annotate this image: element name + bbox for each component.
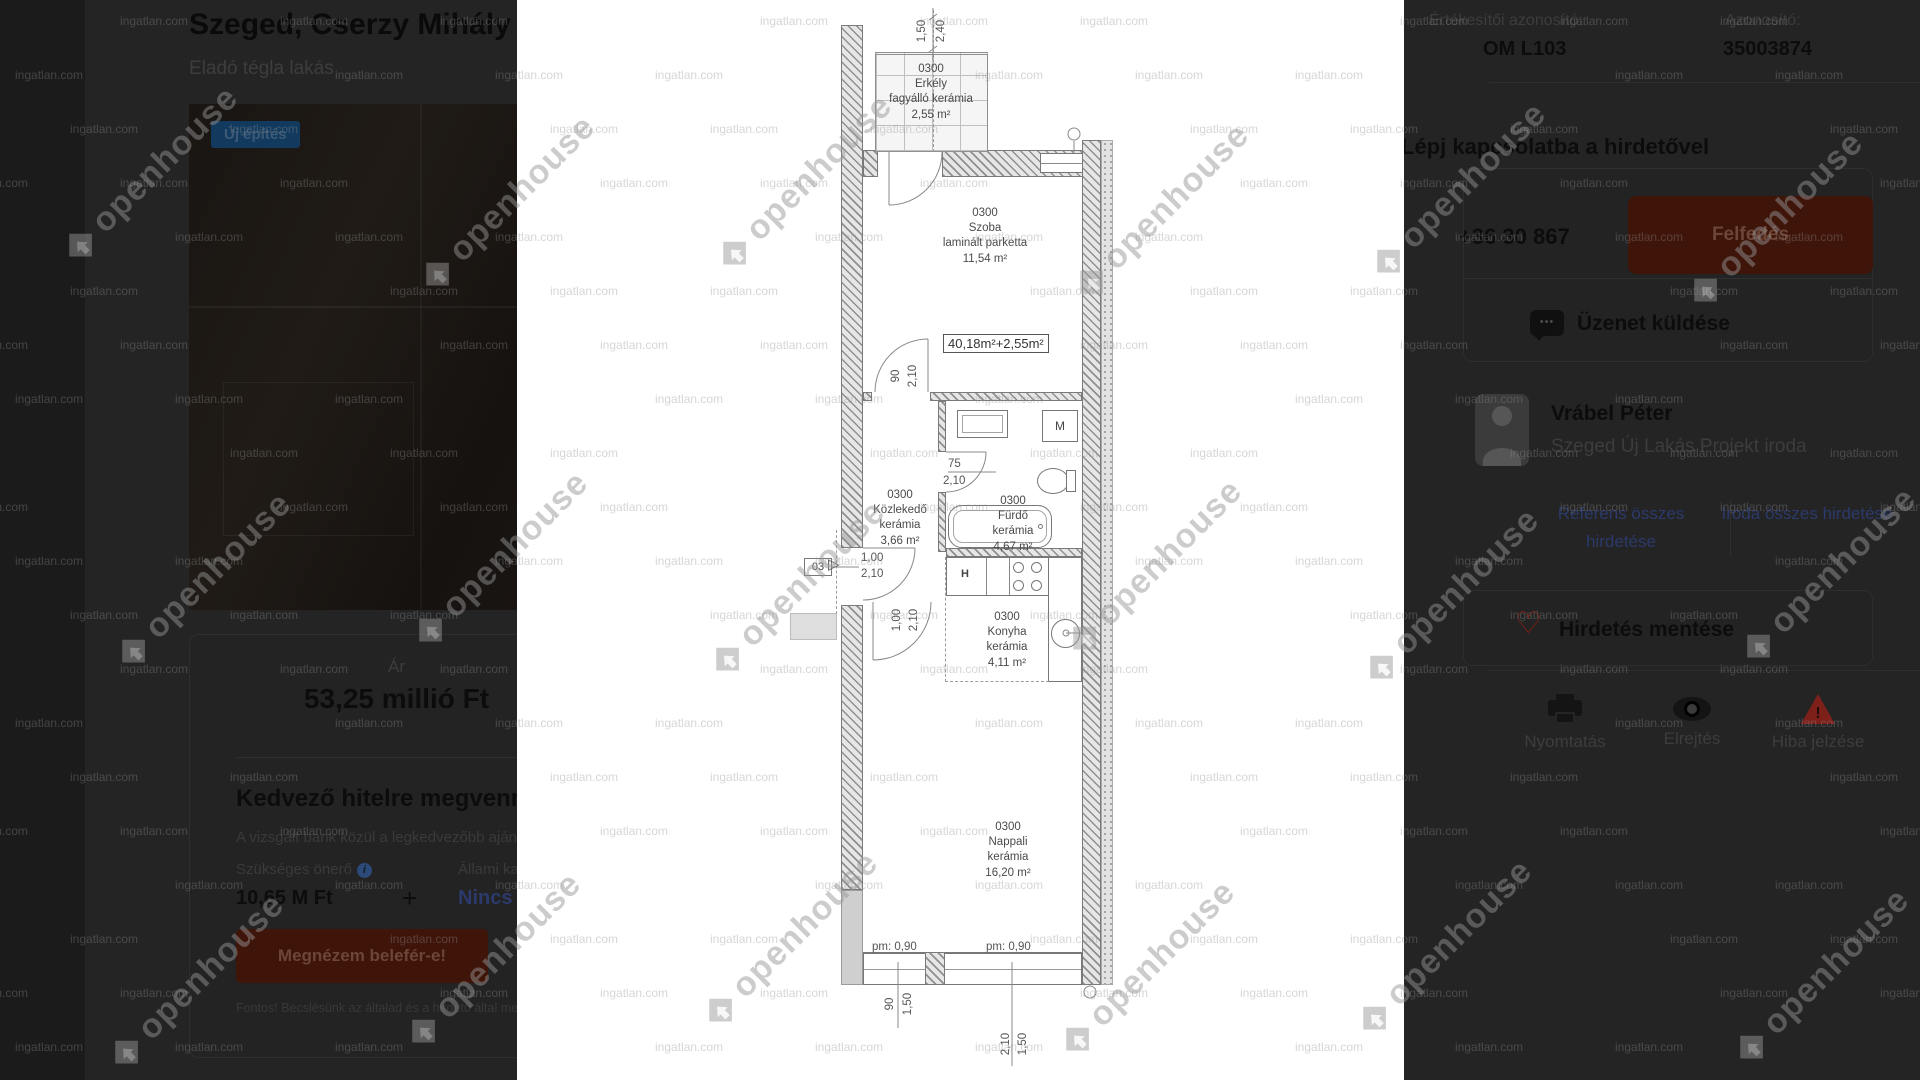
- dim-bottom-right-2: 1,50: [1017, 1024, 1029, 1064]
- dim-bottom-left-2: 1,50: [902, 984, 914, 1024]
- watermark-ingatlan: ingatlan.com: [0, 824, 28, 838]
- downpayment-value: 10,65 M Ft: [236, 887, 333, 910]
- advertiser-id-label: Értékesítői azonosító:: [1429, 12, 1583, 30]
- fridge-label: H: [955, 566, 975, 582]
- room-name: Fürdő: [943, 509, 1083, 524]
- downpayment-label: Szükséges önerői: [236, 861, 372, 878]
- room-code: 0300: [938, 820, 1078, 835]
- room-area: 4,67 m²: [943, 540, 1083, 555]
- dim-hall-door-2: 2,10: [908, 600, 920, 640]
- report-label: Hiba jelzése: [1758, 732, 1878, 752]
- room-label-konyha: 0300 Konyha kerámia 4,11 m²: [937, 610, 1077, 671]
- new-build-badge: Új építés: [211, 121, 300, 148]
- print-button[interactable]: Nyomtatás: [1505, 694, 1625, 752]
- room-name: Konyha: [937, 625, 1077, 640]
- dim-bottom-left-1: 90: [884, 984, 896, 1024]
- room-label-szoba: 0300 Szoba laminált parketta 11,54 m²: [905, 206, 1065, 267]
- dim-bath-door-2: 2,10: [943, 475, 965, 487]
- dim-hall-door-1: 1,00: [891, 600, 903, 640]
- dim-szoba-door-1: 90: [890, 356, 902, 396]
- dim-top-1: 1,50: [916, 11, 928, 51]
- dim-bottom-right-1: 2,10: [1000, 1024, 1012, 1064]
- watermark-ingatlan: ingatlan.com: [15, 68, 83, 82]
- divider: [1489, 82, 1920, 83]
- advertiser-id-value: OM L103: [1483, 38, 1566, 61]
- screenshot-root: Szeged, Cserzy Mihály utca Eladó tégla l…: [0, 0, 1920, 1080]
- room-area: 16,20 m²: [938, 866, 1078, 881]
- room-code: 0300: [905, 206, 1065, 221]
- room-name: Nappali: [938, 835, 1078, 850]
- watermark-ingatlan: ingatlan.com: [15, 554, 83, 568]
- phone-number: +36 30 867: [1459, 224, 1570, 250]
- watermark-ingatlan: ingatlan.com: [0, 176, 28, 190]
- dim-window-left: pm: 0,90: [872, 941, 917, 953]
- hide-label: Elrejtés: [1632, 729, 1752, 749]
- room-floor: laminált parketta: [905, 236, 1065, 251]
- photo-detail: [223, 382, 414, 536]
- plus-sign: +: [402, 883, 417, 914]
- agent-office: Szeged Új Lakás Projekt iroda: [1551, 436, 1807, 458]
- hide-button[interactable]: Elrejtés: [1632, 694, 1752, 749]
- printer-icon: [1548, 694, 1582, 724]
- room-label-erkely: 0300 Erkély fagyálló kerámia 2,55 m²: [861, 62, 1001, 123]
- dim-top-2: 2,40: [935, 11, 947, 51]
- room-floor: kerámia: [943, 524, 1083, 539]
- room-area: 4,11 m²: [937, 656, 1077, 671]
- avatar-body: [1483, 448, 1521, 466]
- office-listings-link[interactable]: Iroda összes hirdetése: [1717, 500, 1897, 528]
- dim-szoba-door-2: 2,10: [907, 356, 919, 396]
- floorplan-lightbox: H M 03 ▷: [517, 0, 1404, 1080]
- eye-icon: [1673, 697, 1711, 721]
- dim-window-right: pm: 0,90: [986, 941, 1031, 953]
- watermark-ingatlan: ingatlan.com: [15, 716, 83, 730]
- watermark-ingatlan: ingatlan.com: [0, 986, 28, 1000]
- listing-id-label: Azonosító:: [1725, 12, 1801, 30]
- dim-entry-door-2: 2,10: [861, 568, 883, 580]
- avatar-head: [1492, 406, 1512, 426]
- room-floor: kerámia: [937, 640, 1077, 655]
- divider: [1489, 670, 1920, 671]
- room-name: Szoba: [905, 221, 1065, 236]
- print-label: Nyomtatás: [1505, 732, 1625, 752]
- send-message-button[interactable]: Üzenet küldése: [1577, 312, 1730, 336]
- divider: [1463, 278, 1873, 279]
- room-label-furdo: 0300 Fürdő kerámia 4,67 m²: [943, 494, 1083, 555]
- room-name: Erkély: [861, 77, 1001, 92]
- heart-icon: ♡: [1515, 606, 1542, 641]
- agent-listings-link[interactable]: Referens összes hirdetése: [1531, 500, 1711, 556]
- watermark-ingatlan: ingatlan.com: [15, 1040, 83, 1054]
- room-floor: fagyálló kerámia: [861, 92, 1001, 107]
- entry-door-marker: ▷: [828, 555, 840, 573]
- room-area: 2,55 m²: [861, 108, 1001, 123]
- chat-dots: •••: [1530, 316, 1564, 328]
- room-code: 0300: [943, 494, 1083, 509]
- agent-avatar: [1475, 394, 1529, 466]
- watermark-ingatlan: ingatlan.com: [0, 500, 28, 514]
- reveal-phone-button[interactable]: Felfedés: [1628, 196, 1873, 274]
- loan-cta-button[interactable]: Megnézem belefér-e!: [236, 929, 488, 983]
- chat-bubble-icon: •••: [1530, 310, 1564, 336]
- warning-icon: !: [1801, 694, 1835, 724]
- info-icon[interactable]: i: [357, 863, 372, 878]
- total-area-label: 40,18m²+2,55m²: [943, 334, 1049, 353]
- report-error-button[interactable]: ! Hiba jelzése: [1758, 694, 1878, 752]
- room-code: 0300: [861, 62, 1001, 77]
- room-code: 0300: [937, 610, 1077, 625]
- contact-heading: Lépj kapcsolatba a hirdetővel: [1401, 134, 1709, 160]
- room-floor: kerámia: [938, 850, 1078, 865]
- page-subtitle: Eladó tégla lakás: [189, 58, 334, 80]
- dim-entry-door-1: 1,00: [861, 552, 883, 564]
- photo-detail: [420, 104, 422, 610]
- agent-name: Vrábel Péter: [1551, 402, 1672, 426]
- save-listing-label: Hirdetés mentése: [1559, 618, 1734, 642]
- downpayment-label-text: Szükséges önerő: [236, 861, 352, 878]
- watermark-ingatlan: ingatlan.com: [0, 338, 28, 352]
- room-area: 11,54 m²: [905, 252, 1065, 267]
- room-label-nappali: 0300 Nappali kerámia 16,20 m²: [938, 820, 1078, 881]
- dim-bath-door-1: 75: [948, 458, 961, 470]
- listing-id-value: 35003874: [1723, 38, 1812, 61]
- watermark-ingatlan: ingatlan.com: [15, 392, 83, 406]
